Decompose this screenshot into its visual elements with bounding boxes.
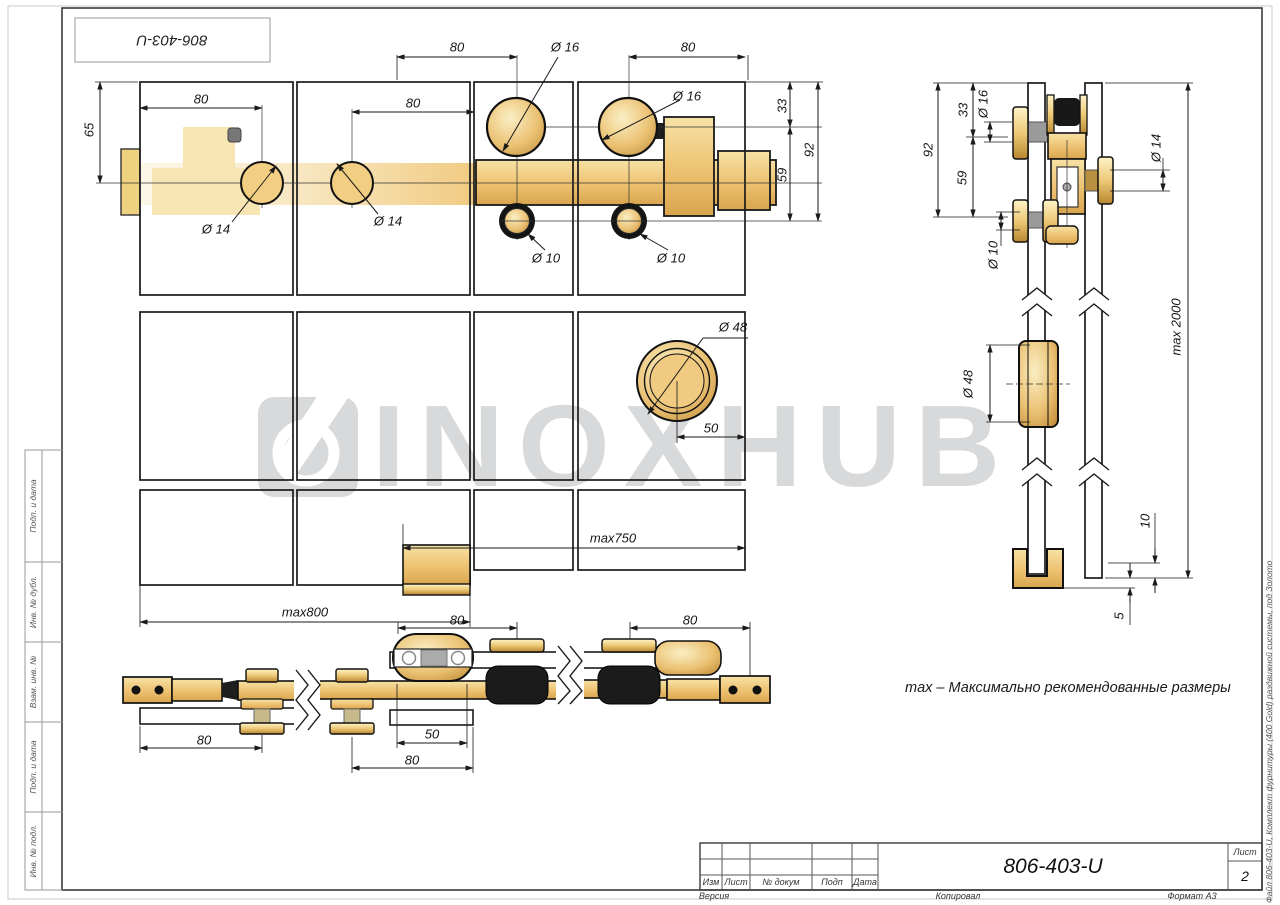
dim-pv-right80: 80 <box>683 613 697 628</box>
tb-col-izm: Изм <box>703 877 720 887</box>
dim-sv-wall-roller-dia: Ø 14 <box>1149 134 1164 162</box>
stamp-designation: 806-403-U <box>137 32 208 49</box>
dim-h65: 65 <box>82 123 97 137</box>
dim-handle-dia: Ø 48 <box>719 320 747 335</box>
sidebar-label-inv-podl: Инв. № подл. <box>28 825 38 878</box>
tb-col-list: Лист <box>724 877 747 887</box>
dim-sv-gap10: 10 <box>1138 514 1153 528</box>
dim-sv-guide-dia: Ø 10 <box>986 241 1001 269</box>
roller-1 <box>487 98 545 156</box>
sidebar-label-vzam-inv: Взам. инв. № <box>28 656 38 709</box>
file-note: Файл 806-403-U, Комплект фурнитуры (400 … <box>1264 573 1274 903</box>
guide-roller-2 <box>611 203 647 239</box>
dim-sv-handle-dia: Ø 48 <box>961 370 976 398</box>
tb-version-label: Версия <box>699 891 729 901</box>
tb-col-podp: Подп <box>821 877 842 887</box>
dim-sv-h33: 33 <box>956 103 971 117</box>
dim-guide-dia-2: Ø 10 <box>657 251 685 266</box>
dim-h92: 92 <box>802 143 817 157</box>
tb-sheet-number: 2 <box>1241 868 1249 884</box>
wall-plate-left <box>123 677 172 703</box>
bolt-stack-2 <box>330 669 374 734</box>
dim-guide-dia-1: Ø 10 <box>532 251 560 266</box>
sidebar-label-podp-data-1: Подп. и дата <box>28 479 38 532</box>
dim-pv-guide50: 50 <box>425 727 439 742</box>
tb-sheet-label: Лист <box>1233 847 1256 857</box>
tb-col-doc: № докум <box>762 877 799 887</box>
dim-sv-gap5: 5 <box>1112 612 1127 619</box>
dim-sv-max-height: max 2000 <box>1169 298 1184 355</box>
dim-sv-h59: 59 <box>955 171 970 185</box>
dim-span-top-left: 80 <box>450 40 464 55</box>
dim-pv-left80: 80 <box>197 733 211 748</box>
wall-roller <box>1098 157 1113 204</box>
dim-pv-guide80: 80 <box>405 753 419 768</box>
drawing-linework <box>0 0 1280 905</box>
dim-h59: 59 <box>775 168 790 182</box>
sidebar-label-podp-data-2: Подп. и дата <box>28 740 38 793</box>
dim-sv-roller-dia: Ø 16 <box>976 90 991 118</box>
floor-guide-plan <box>393 634 473 681</box>
dim-roller-dia-1: Ø 16 <box>551 40 579 55</box>
side-view <box>1006 83 1113 588</box>
dim-roller-dia-2: Ø 16 <box>673 89 701 104</box>
guide-roller-1 <box>499 203 535 239</box>
floor-guide <box>403 545 470 585</box>
plan-view <box>123 634 770 734</box>
sidebar-label-inv-dubl: Инв. № дубл. <box>28 576 38 628</box>
dim-span-top-right: 80 <box>681 40 695 55</box>
roller-stack-1 <box>486 639 548 704</box>
tb-format-label: Формат А3 <box>1167 891 1216 901</box>
tb-col-data: Дата <box>853 877 877 887</box>
dim-offset-left: 80 <box>194 92 208 107</box>
door-glass <box>1028 83 1045 574</box>
wall-plate-right <box>720 676 770 703</box>
dim-offset-mid: 80 <box>406 96 420 111</box>
dim-handle-offset: 50 <box>704 421 718 436</box>
tb-copied-label: Копировал <box>936 891 981 901</box>
tb-designation: 806-403-U <box>1003 855 1102 879</box>
bolt-stack-1 <box>240 669 284 734</box>
dim-bolt-dia-1: Ø 14 <box>202 222 230 237</box>
front-view <box>96 55 822 595</box>
dim-max800: max800 <box>282 605 328 620</box>
handle-side <box>1006 341 1070 427</box>
drawing-sheet: { "stamp": { "text": "806-403-U" }, "wat… <box>0 0 1280 905</box>
max-note: max – Максимально рекомендованные размер… <box>905 680 1231 696</box>
dim-h33: 33 <box>775 99 790 113</box>
dim-bolt-dia-2: Ø 14 <box>374 214 402 229</box>
dim-pv-mid80: 80 <box>450 613 464 628</box>
dim-sv-h92: 92 <box>921 143 936 157</box>
track-bolt-1 <box>241 162 283 204</box>
dim-max750: max750 <box>590 531 636 546</box>
